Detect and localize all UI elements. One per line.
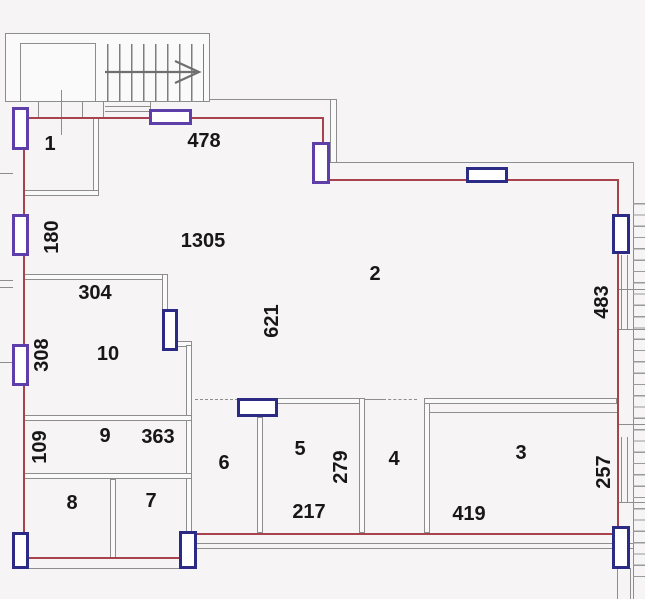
- building-outline-bottom-left: [13, 568, 197, 569]
- boundary-wall-bottom: [190, 533, 619, 535]
- room-2-label: 2: [364, 262, 386, 286]
- dim-308: 308: [31, 331, 53, 379]
- neighbor-wall-stub: [0, 173, 13, 174]
- dim-279: 279: [330, 443, 352, 491]
- room-3-inner-line: [430, 412, 617, 413]
- stair-direction-arrow: [103, 58, 207, 86]
- floor-plan: 1 2 3 4 5 6 7 8 9 10 478 1305 180 304 30…: [0, 0, 645, 599]
- room-4-label: 4: [384, 446, 404, 472]
- landing-strip-divider: [82, 102, 83, 118]
- room-1-right-wall: [93, 117, 99, 196]
- dim-478: 478: [179, 130, 229, 152]
- window-icon: [612, 214, 630, 254]
- landing-strip-divider: [38, 102, 39, 118]
- window-icon: [12, 344, 29, 386]
- room-5-top-wall: [277, 398, 363, 404]
- window-icon: [162, 309, 178, 351]
- dim-483: 483: [591, 278, 613, 326]
- balcony-partition: [617, 424, 645, 425]
- room-7-label: 7: [141, 488, 161, 514]
- window-icon: [312, 142, 330, 184]
- dim-304: 304: [71, 282, 119, 304]
- room-10-top-wall: [23, 274, 168, 280]
- dim-1305: 1305: [174, 230, 232, 252]
- room-10-label: 10: [93, 342, 123, 366]
- building-outline-bottom: [197, 548, 633, 549]
- window-icon: [466, 167, 508, 183]
- room-1-leader-line: [61, 90, 62, 135]
- corridor-right-wall: [186, 345, 192, 533]
- neighbor-wall-stub: [0, 280, 13, 281]
- building-outline-bottom: [197, 543, 633, 544]
- loggia-glazing: [627, 437, 628, 503]
- landing-strip-divider: [103, 102, 104, 118]
- neighbor-wall-stub: [0, 287, 13, 288]
- loggia-glazing: [627, 255, 628, 330]
- window-icon: [612, 526, 630, 569]
- building-outline-upper: [336, 162, 633, 163]
- dim-109: 109: [29, 423, 51, 471]
- entry-door-step: [105, 111, 150, 112]
- room-9-label: 9: [95, 424, 115, 448]
- room-8-7-divider: [110, 479, 116, 558]
- window-icon: [12, 214, 29, 256]
- building-outline-top: [210, 99, 332, 100]
- corridor-bottom-wall: [23, 473, 192, 479]
- room-1-label: 1: [38, 132, 62, 156]
- room-6-5-divider: [257, 417, 263, 533]
- dim-363: 363: [134, 426, 182, 448]
- dim-257: 257: [593, 448, 615, 496]
- corner-pier-icon: [12, 532, 29, 569]
- room-1-bottom-wall: [23, 190, 99, 196]
- room-5-4-divider: [359, 398, 365, 533]
- room-5-label: 5: [290, 436, 310, 462]
- room-10-bottom-wall: [23, 415, 192, 421]
- dim-621: 621: [261, 297, 283, 345]
- building-outline-lower-right: [617, 568, 618, 599]
- dim-180: 180: [41, 213, 63, 261]
- dim-217: 217: [285, 500, 333, 524]
- room-6-label: 6: [214, 450, 234, 476]
- room-8-label: 8: [62, 490, 82, 516]
- room-4-top-segment: [365, 399, 385, 400]
- window-icon: [149, 109, 192, 125]
- room-6-opening-dashed: [195, 399, 238, 400]
- window-icon: [12, 107, 29, 150]
- corner-pier-icon: [179, 531, 197, 569]
- room-10-nook-wall: [162, 274, 168, 312]
- loggia-glazing: [621, 437, 622, 503]
- balcony-hatch: [633, 193, 645, 581]
- loggia-glazing: [621, 255, 622, 330]
- building-outline-lower-right: [630, 568, 631, 599]
- boundary-wall-left: [23, 117, 25, 559]
- duct-block-icon: [237, 398, 278, 417]
- building-outline-step: [330, 99, 337, 163]
- room-3-top-wall: [424, 398, 617, 404]
- room-4-3-divider: [424, 398, 430, 533]
- stair-landing: [20, 43, 96, 102]
- entry-door-step: [105, 106, 150, 107]
- dim-419: 419: [445, 502, 493, 526]
- room-3-label: 3: [510, 440, 532, 466]
- room-4-opening-dashed: [383, 399, 417, 400]
- boundary-wall-bottom-left: [23, 557, 192, 559]
